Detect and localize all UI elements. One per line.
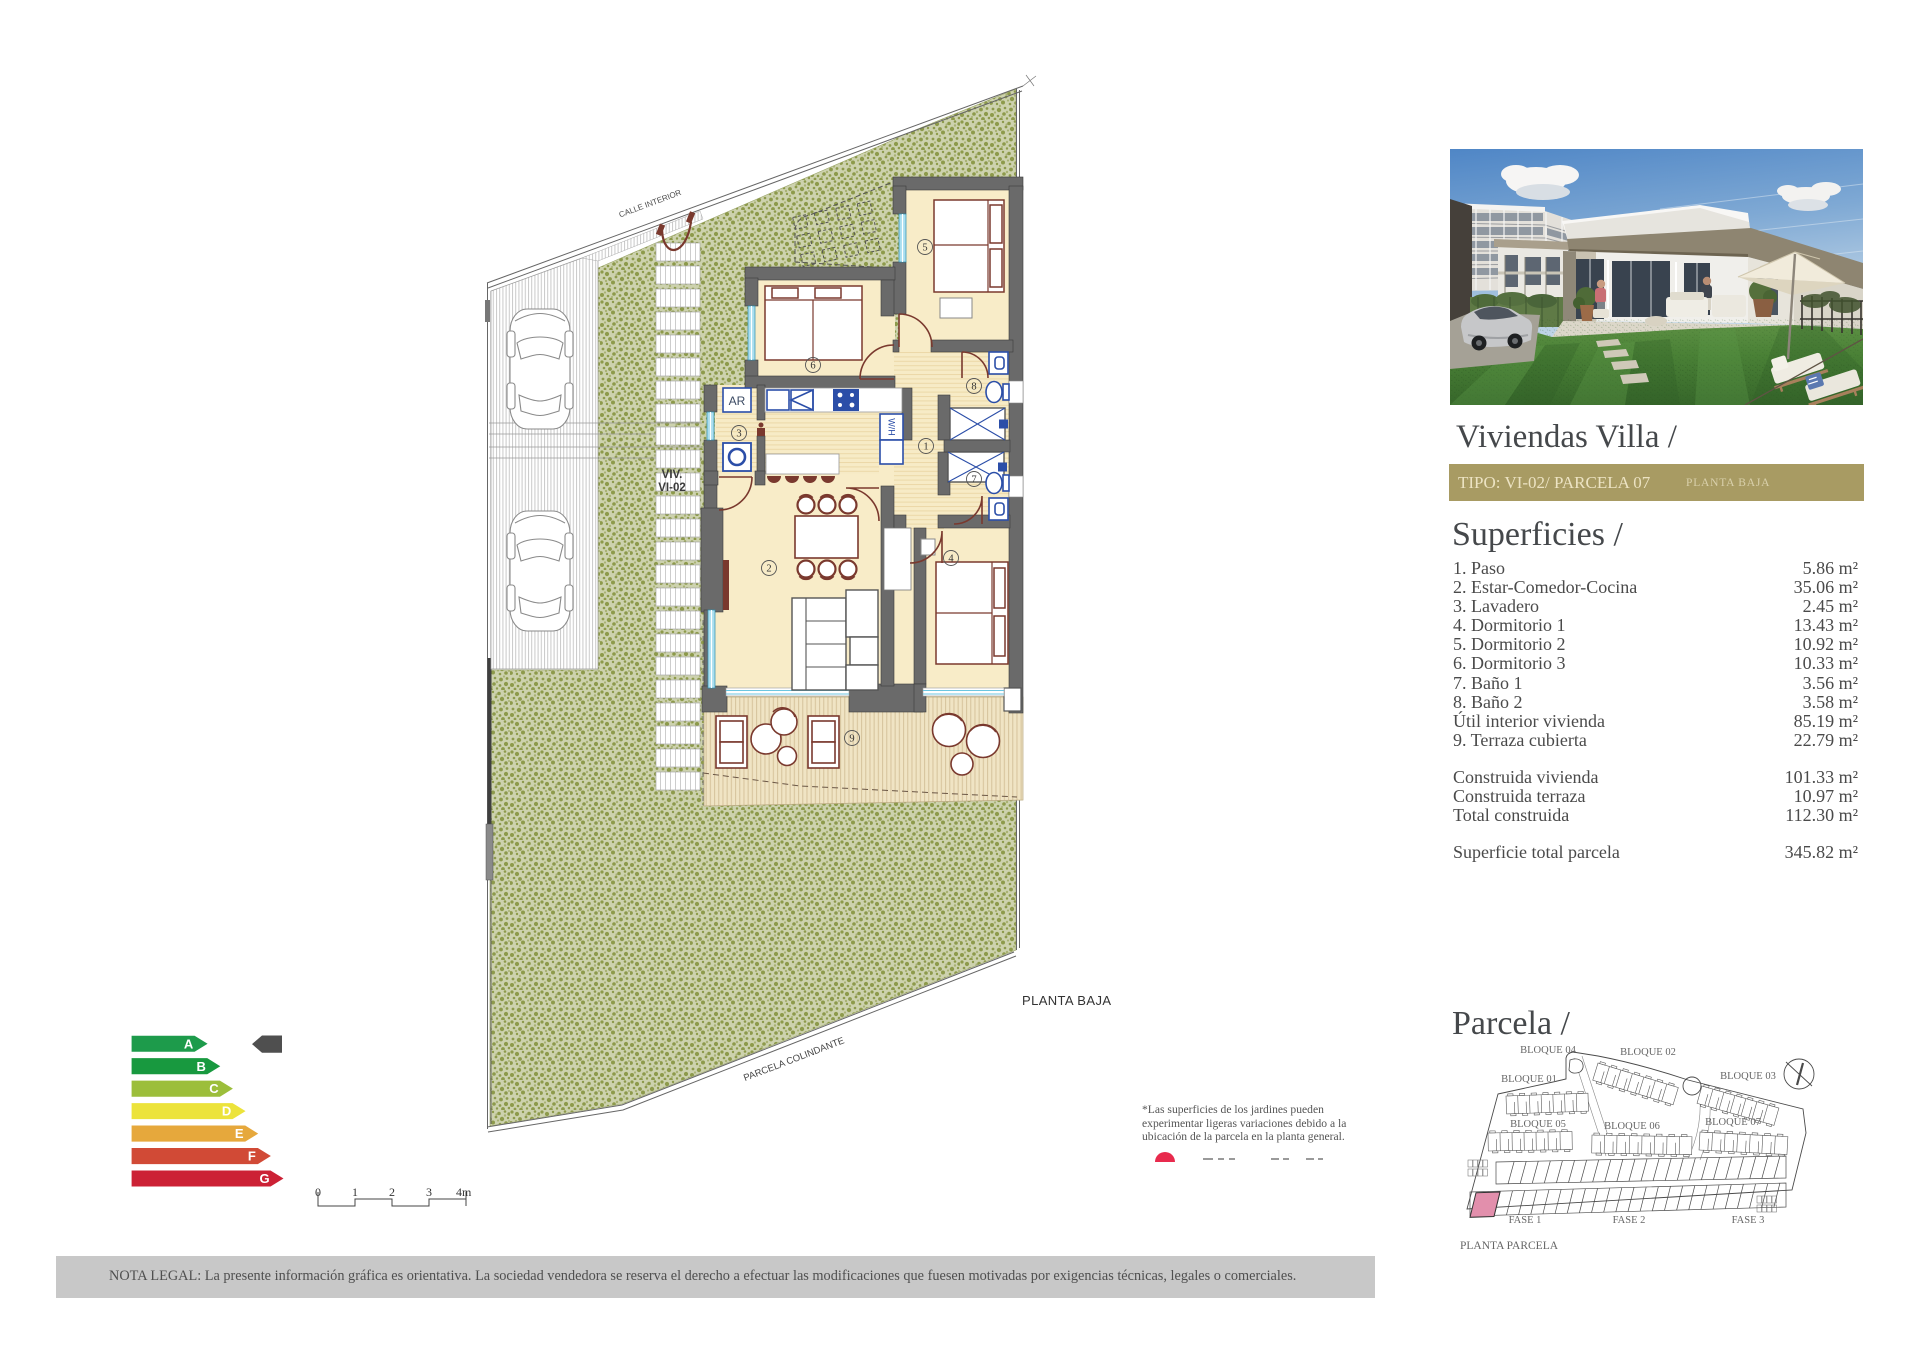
svg-text:BLOQUE 04: BLOQUE 04 <box>1520 1045 1576 1056</box>
svg-text:BLOQUE 07: BLOQUE 07 <box>1705 1117 1761 1128</box>
svg-text:E: E <box>235 1126 244 1141</box>
svg-text:2: 2 <box>389 1185 395 1199</box>
svg-text:9: 9 <box>849 734 854 745</box>
svg-text:6: 6 <box>810 361 815 372</box>
svg-text:2: 2 <box>766 564 771 575</box>
svg-text:0: 0 <box>315 1185 321 1199</box>
svg-text:AR: AR <box>729 394 746 408</box>
svg-text:4: 4 <box>948 554 954 565</box>
svg-text:BLOQUE 02: BLOQUE 02 <box>1620 1047 1676 1058</box>
svg-text:F: F <box>248 1149 256 1164</box>
svg-text:B: B <box>197 1059 206 1074</box>
svg-text:A: A <box>184 1036 194 1051</box>
svg-text:PLANTA PARCELA: PLANTA PARCELA <box>1460 1240 1559 1252</box>
svg-text:1: 1 <box>352 1185 358 1199</box>
svg-text:BLOQUE 06: BLOQUE 06 <box>1604 1121 1660 1132</box>
svg-text:C: C <box>209 1081 219 1096</box>
svg-text:W/H: W/H <box>887 418 897 436</box>
svg-text:BLOQUE 03: BLOQUE 03 <box>1720 1071 1776 1082</box>
svg-text:3: 3 <box>426 1185 432 1199</box>
svg-text:7: 7 <box>971 475 976 486</box>
svg-text:8: 8 <box>971 382 976 393</box>
svg-text:FASE 1: FASE 1 <box>1509 1215 1542 1226</box>
svg-text:3: 3 <box>736 429 741 440</box>
svg-text:D: D <box>222 1104 231 1119</box>
svg-text:VI-02: VI-02 <box>658 482 686 494</box>
svg-text:BLOQUE 05: BLOQUE 05 <box>1510 1119 1566 1130</box>
svg-text:G: G <box>259 1171 269 1186</box>
svg-text:VIV.: VIV. <box>662 469 683 481</box>
svg-text:BLOQUE 01: BLOQUE 01 <box>1501 1074 1557 1085</box>
svg-text:1: 1 <box>923 442 928 453</box>
svg-text:5: 5 <box>922 243 927 254</box>
svg-text:FASE 3: FASE 3 <box>1732 1215 1765 1226</box>
svg-text:4m: 4m <box>456 1185 472 1199</box>
svg-text:FASE 2: FASE 2 <box>1613 1215 1646 1226</box>
